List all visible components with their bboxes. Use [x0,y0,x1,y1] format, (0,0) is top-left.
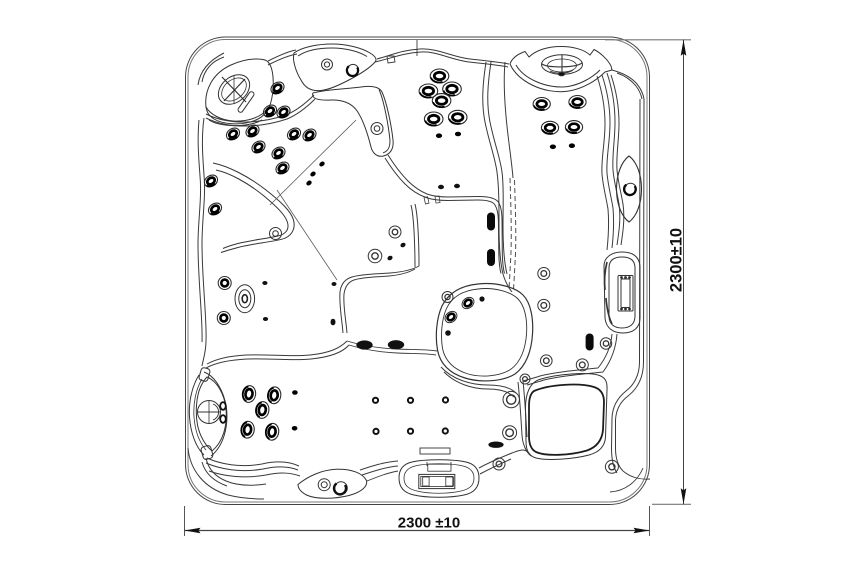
svg-text:2300 ±10: 2300 ±10 [398,515,460,532]
svg-text:2300±10: 2300±10 [668,228,686,292]
